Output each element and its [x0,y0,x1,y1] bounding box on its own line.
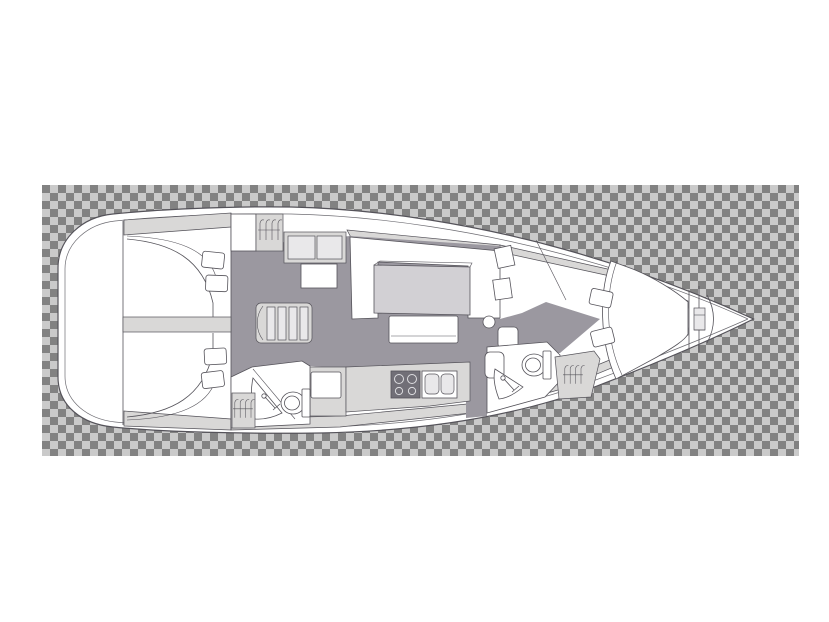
aft-head [231,361,310,428]
stool [483,316,495,328]
pillow [204,348,227,365]
boat-floorplan-svg [0,0,829,622]
pillow [201,370,225,389]
pillow [201,251,225,269]
page: { "meta": { "title": "Sailing yacht inte… [0,0,829,622]
pillow [205,275,228,292]
stair-tread [300,307,308,340]
cabinet-door-right [317,236,342,259]
hanging-locker [232,393,255,428]
salon-bench [389,316,458,343]
sink-basin-left [425,374,439,394]
windlass [694,308,705,330]
companionway-stairs [256,303,312,343]
top-loading-fridge [311,372,341,398]
stair-tread [278,307,286,340]
salon-table [374,265,470,315]
deck-hatch [301,264,337,288]
aft-cabin-divider [123,317,231,332]
stair-tread [267,307,275,340]
nav-shelf-box [493,278,513,300]
galley-stove [391,371,420,398]
locker-front [231,214,256,251]
stove-top [391,371,420,398]
floorplan-image [0,0,829,622]
stair-tread [289,307,297,340]
nav-shelf-box [494,245,515,268]
cabinet-door-left [288,236,315,259]
sink-basin-right [441,374,454,394]
galley-sink-unit [422,371,457,398]
